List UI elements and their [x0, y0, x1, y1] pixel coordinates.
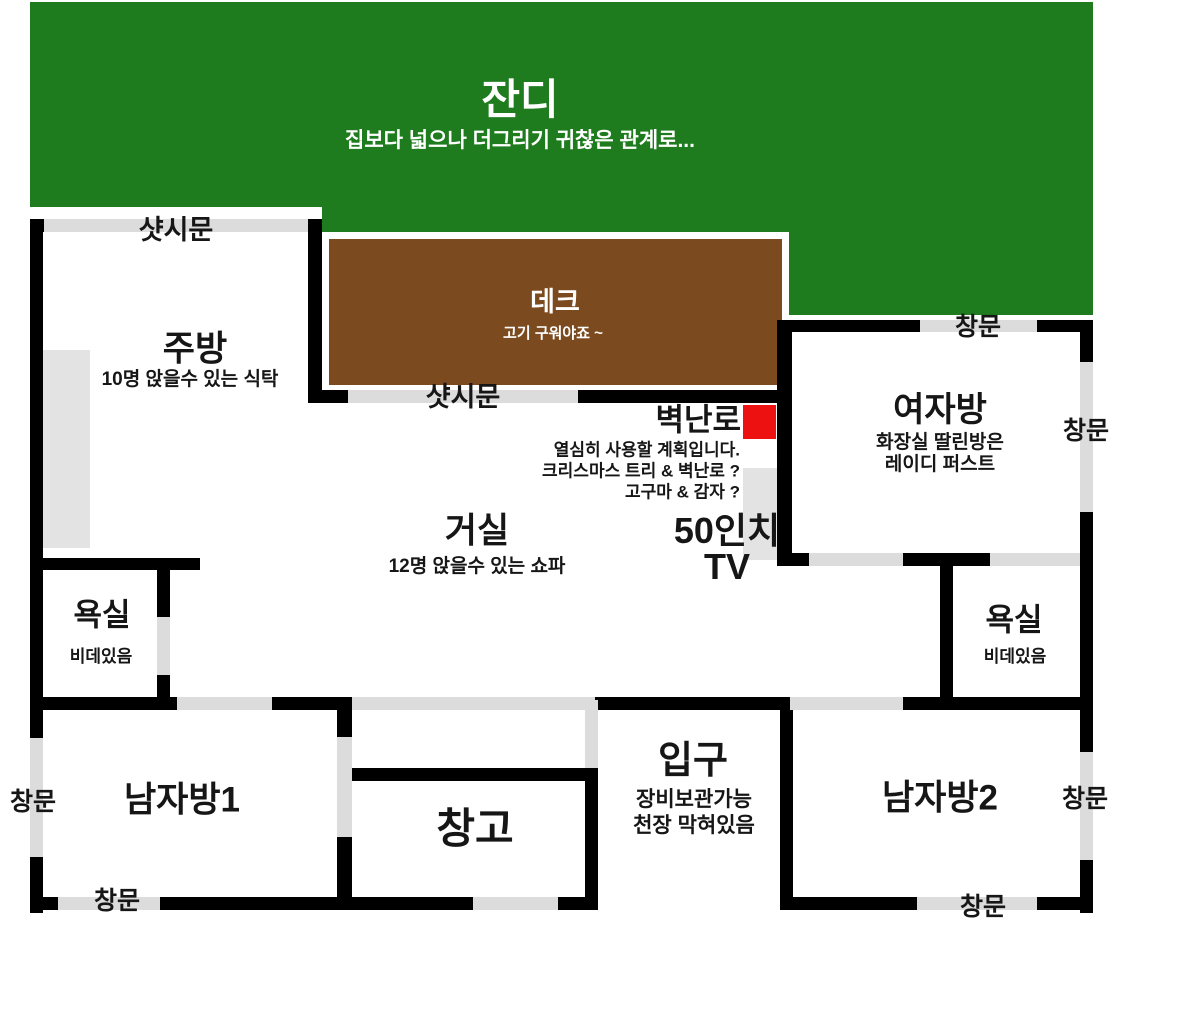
entrance-label: 입구 [658, 742, 728, 782]
room-door [990, 553, 1080, 566]
fireplace-notes: 열심히 사용할 계획입니다. 크리스마스 트리 & 벽난로 ? 고구마 & 감자… [542, 440, 740, 503]
window-label: 창문 [955, 314, 1001, 340]
room-door [790, 697, 903, 710]
fireplace-label: 벽난로 [655, 405, 741, 438]
window-opening [473, 897, 558, 910]
fireplace-marker [743, 405, 776, 439]
window-label: 창문 [10, 789, 56, 815]
wall-segment [352, 768, 598, 781]
wall-segment [1080, 512, 1093, 752]
wall-segment [308, 390, 348, 403]
floor-plan: 잔디 집보다 넓으나 더그리기 귀찮은 관계로... 데크 고기 구워야죠 ~ … [0, 0, 1199, 1027]
wall-segment [337, 837, 352, 897]
bath-right-note: 비데있음 [984, 648, 1047, 666]
wall-segment [272, 697, 352, 710]
wall-segment [903, 697, 1093, 710]
man-room2-label: 남자방2 [882, 781, 998, 818]
sash-door-label: 샷시문 [426, 383, 501, 411]
lawn-label: 잔디 [481, 78, 558, 122]
fireplace-note: 열심히 사용할 계획입니다. [542, 440, 740, 461]
bath-left-label: 욕실 [73, 600, 130, 633]
room-door [585, 700, 598, 768]
bath-left-note: 비데있음 [70, 648, 133, 666]
fireplace-note: 크리스마스 트리 & 벽난로 ? [542, 461, 740, 482]
room-door [177, 697, 272, 710]
room-door [352, 697, 595, 710]
bath-right-label: 욕실 [985, 605, 1042, 638]
wall-segment [558, 897, 598, 910]
wall-segment [1037, 897, 1093, 910]
room-door [809, 553, 903, 566]
deck-note: 고기 구워야죠 ~ [503, 326, 603, 342]
window-label: 창문 [94, 888, 140, 914]
wall-segment [780, 897, 917, 910]
wall-segment [940, 553, 953, 710]
deck-label: 데크 [530, 288, 580, 316]
wall-segment [337, 710, 352, 737]
man-room1-label: 남자방1 [124, 783, 240, 820]
wall-segment [30, 219, 43, 738]
wall-segment [777, 553, 809, 566]
wall-segment [30, 697, 177, 710]
wall-segment [30, 219, 44, 232]
wall-segment [30, 558, 200, 570]
kitchen-note: 10명 앉을수 있는 식탁 [102, 370, 279, 390]
wall-segment [1080, 320, 1093, 362]
wall-segment [30, 897, 58, 910]
woman-room-note1: 화장실 딸린방은 [876, 433, 1004, 453]
living-label: 거실 [445, 514, 509, 551]
living-note: 12명 앉을수 있는 쇼파 [389, 557, 566, 577]
wall-segment [157, 570, 170, 617]
lawn-note: 집보다 넓으나 더그리기 귀찮은 관계로... [345, 130, 695, 152]
kitchen-label: 주방 [163, 332, 227, 369]
tv-label-line1: 50인치 [674, 513, 780, 549]
wall-segment [160, 897, 473, 910]
wall-segment [578, 390, 780, 403]
window-label: 창문 [1063, 418, 1109, 444]
tv-label: 50인치 TV [674, 513, 780, 585]
tv-label-line2: TV [674, 549, 780, 585]
woman-room-label: 여자방 [893, 393, 987, 429]
woman-room-note2: 레이디 퍼스트 [885, 455, 995, 475]
entrance-note1: 장비보관가능 [636, 789, 752, 811]
room-door [157, 617, 170, 675]
sash-door-label: 샷시문 [139, 216, 214, 244]
entrance-note2: 천장 막혀있음 [633, 815, 755, 837]
fireplace-note: 고구마 & 감자 ? [542, 482, 740, 503]
wall-segment [595, 697, 780, 710]
wall-segment [780, 320, 920, 332]
room-door [337, 737, 352, 837]
wall-segment [780, 697, 793, 910]
wall-segment [157, 675, 170, 697]
storage-label: 창고 [436, 807, 513, 851]
window-label: 창문 [960, 894, 1006, 920]
wall-segment [585, 768, 598, 910]
kitchen-counter [43, 350, 90, 548]
wall-segment [308, 219, 322, 403]
window-label: 창문 [1062, 786, 1108, 812]
